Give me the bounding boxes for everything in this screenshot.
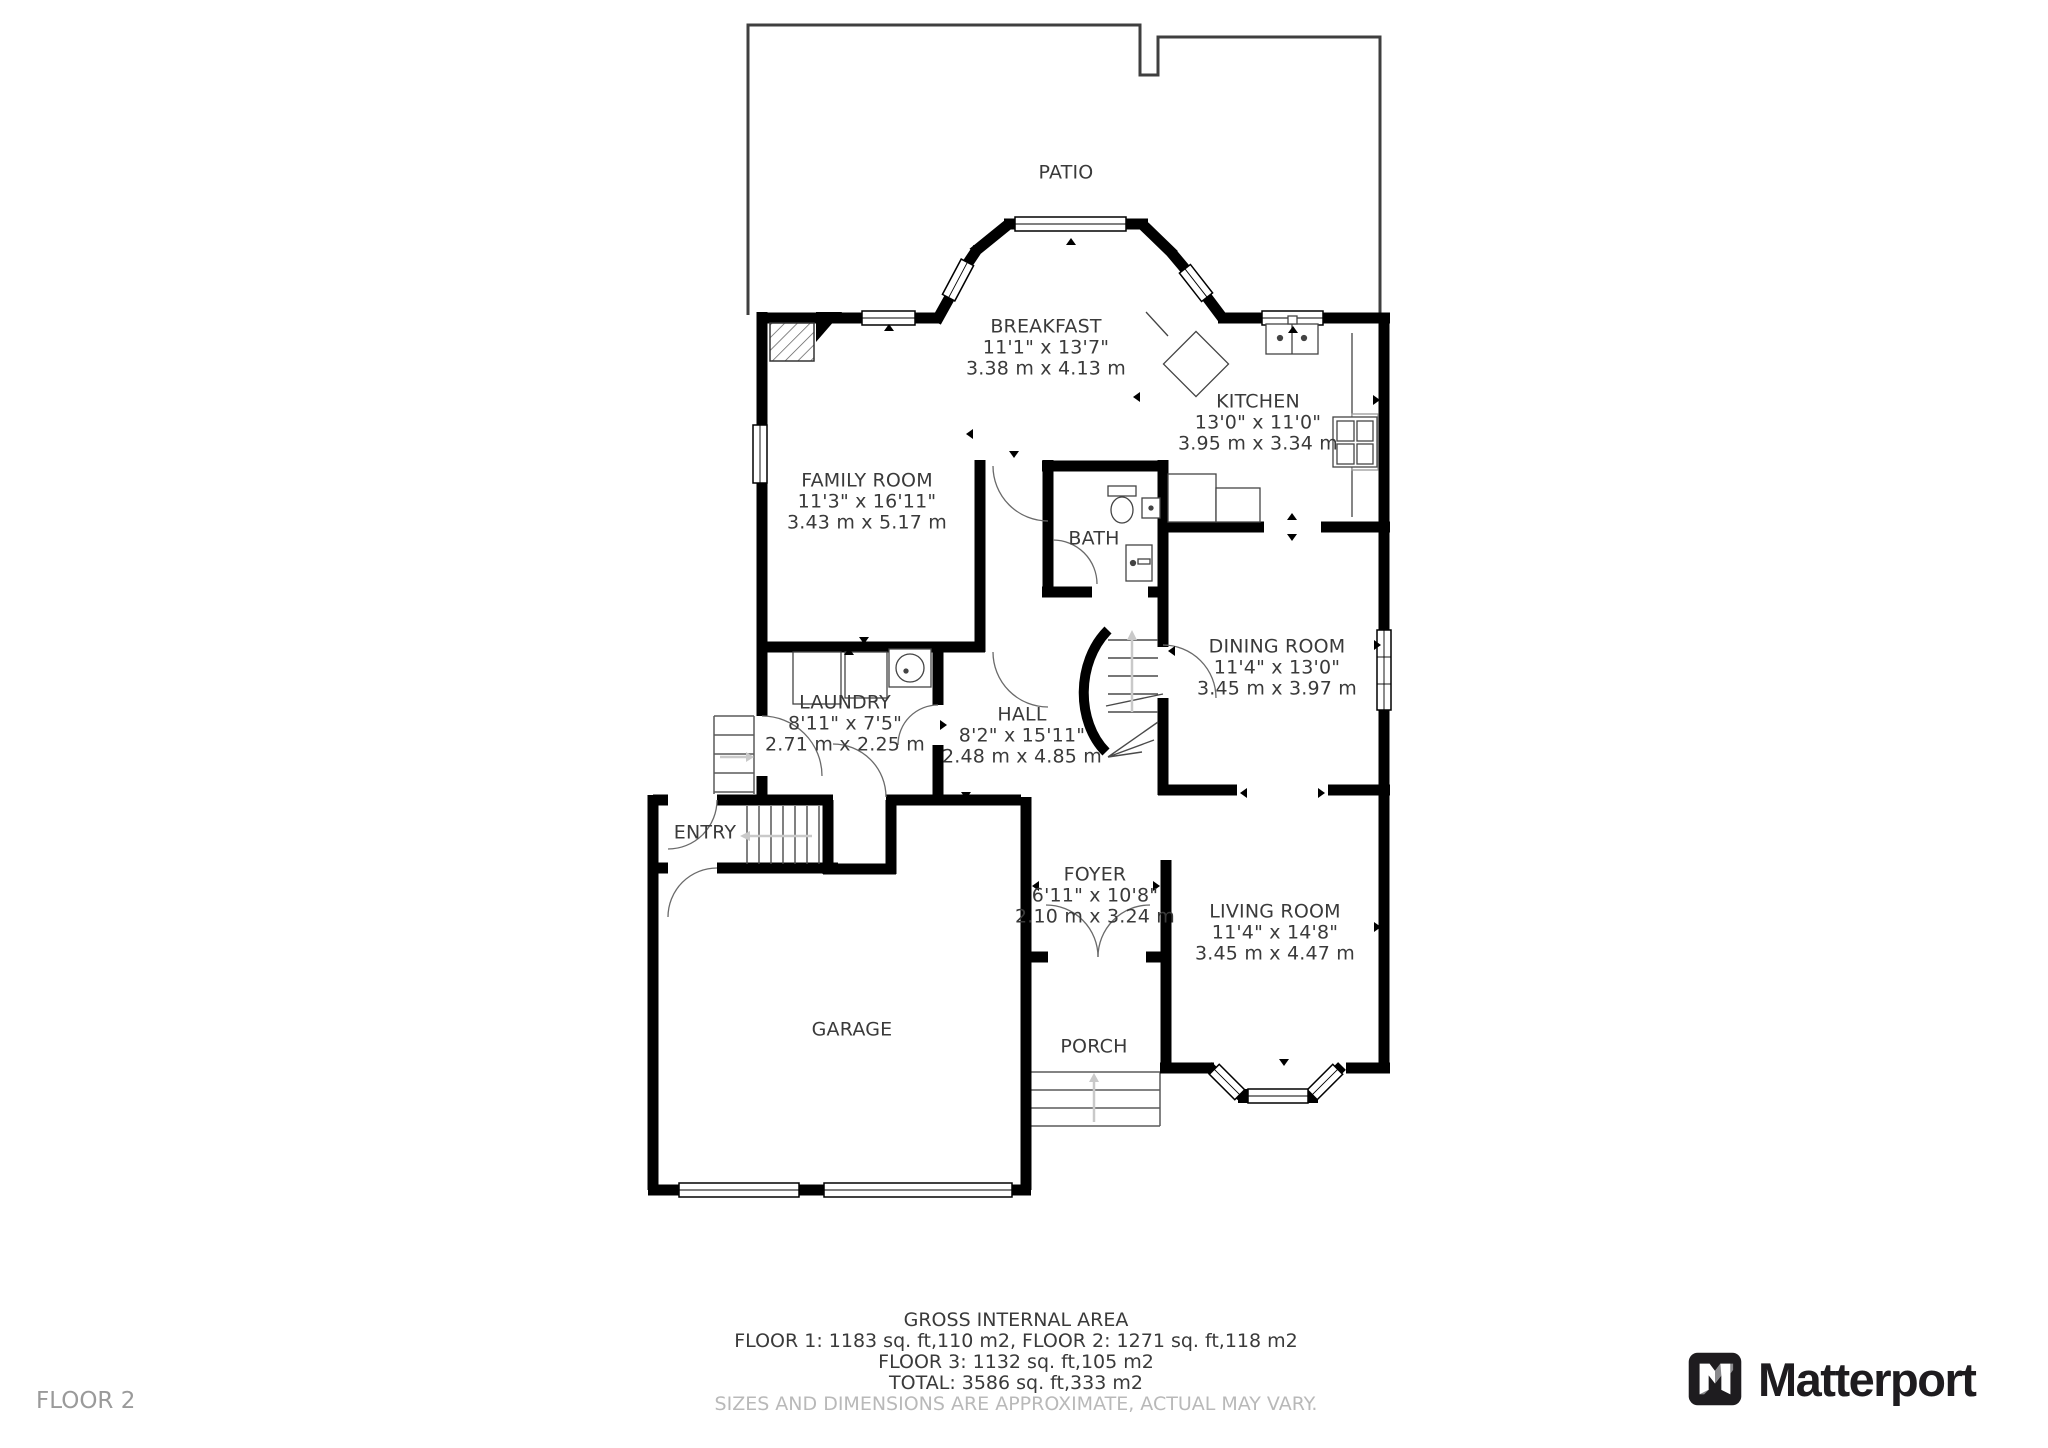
room-label-laundry: LAUNDRY 8'11" x 7'5" 2.71 m x 2.25 m [765, 693, 925, 756]
gross-internal-area-summary: GROSS INTERNAL AREA FLOOR 1: 1183 sq. ft… [715, 1310, 1318, 1415]
room-label-breakfast: BREAKFAST 11'1" x 13'7" 3.38 m x 4.13 m [966, 317, 1126, 380]
matterport-wordmark: Matterport [1758, 1352, 1975, 1407]
footer-floor1-2: FLOOR 1: 1183 sq. ft,110 m2, FLOOR 2: 12… [715, 1331, 1318, 1352]
room-label-patio: PATIO [1039, 163, 1094, 184]
room-label-entry: ENTRY [674, 823, 736, 844]
room-label-porch: PORCH [1060, 1037, 1127, 1058]
kitchen-island-icon [1163, 331, 1228, 396]
room-label-living-room: LIVING ROOM 11'4" x 14'8" 3.45 m x 4.47 … [1195, 902, 1355, 965]
footer-title: GROSS INTERNAL AREA [715, 1310, 1318, 1331]
floorplan-page: PATIO BREAKFAST 11'1" x 13'7" 3.38 m x 4… [0, 0, 2048, 1448]
floor-label: FLOOR 2 [36, 1388, 135, 1414]
room-label-dining-room: DINING ROOM 11'4" x 13'0" 3.45 m x 3.97 … [1197, 637, 1357, 700]
room-label-garage: GARAGE [812, 1020, 893, 1041]
footer-total: TOTAL: 3586 sq. ft,333 m2 [715, 1373, 1318, 1394]
matterport-logo-icon [1686, 1350, 1744, 1408]
room-label-family-room: FAMILY ROOM 11'3" x 16'11" 3.43 m x 5.17… [787, 471, 947, 534]
toilet-icon [1108, 486, 1136, 496]
footer-disclaimer: SIZES AND DIMENSIONS ARE APPROXIMATE, AC… [715, 1394, 1318, 1415]
room-label-kitchen: KITCHEN 13'0" x 11'0" 3.95 m x 3.34 m [1178, 392, 1338, 455]
matterport-logo: Matterport [1686, 1350, 1975, 1408]
footer-floor3: FLOOR 3: 1132 sq. ft,105 m2 [715, 1352, 1318, 1373]
fireplace-hatch [770, 323, 814, 361]
room-label-foyer: FOYER 6'11" x 10'8" 2.10 m x 3.24 m [1015, 865, 1175, 928]
room-label-bath: BATH [1068, 529, 1119, 550]
kitchen-counter-block [1168, 474, 1216, 522]
room-label-hall: HALL 8'2" x 15'11" 2.48 m x 4.85 m [942, 705, 1102, 768]
